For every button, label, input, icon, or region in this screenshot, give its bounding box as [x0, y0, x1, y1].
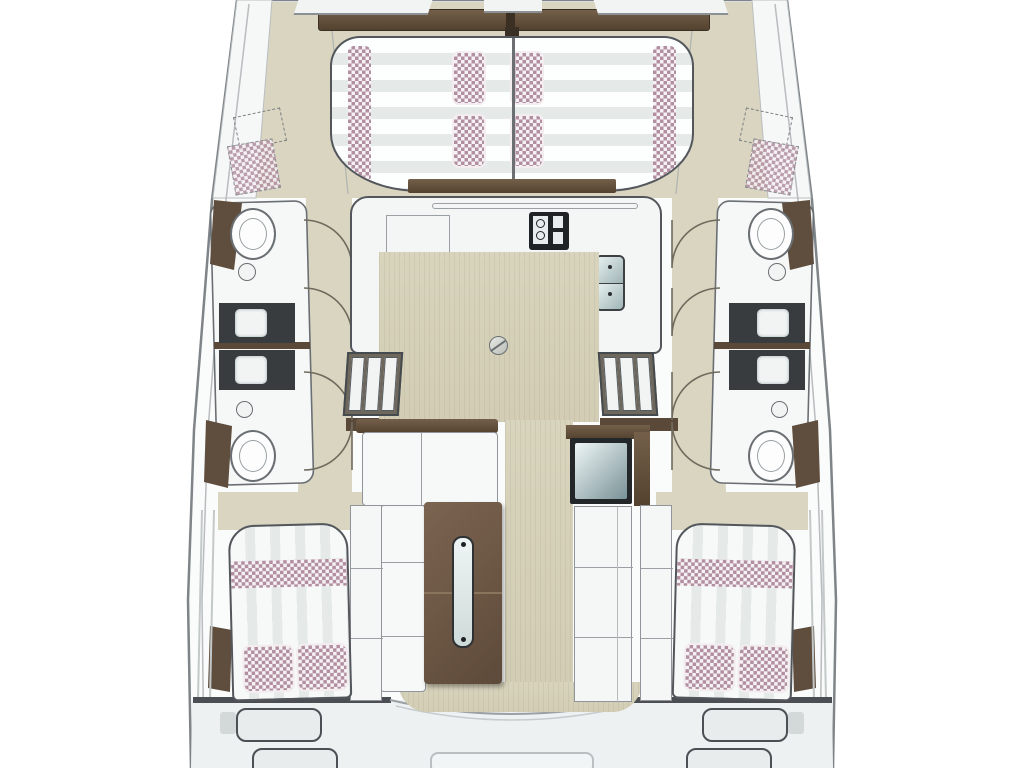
- basin-starboard-fwd: [768, 263, 786, 281]
- appliance-well: [386, 215, 450, 255]
- bow-fitting-center: [484, 0, 542, 13]
- bow-hatch-starboard-cushion: [745, 138, 799, 195]
- lounge-base-trim: [408, 179, 616, 193]
- lounge-pillow: [510, 51, 544, 105]
- berth-starboard: [672, 522, 797, 701]
- fridge-frame-side: [634, 432, 650, 506]
- transom-locker-starboard: [788, 712, 804, 734]
- berth-blanket-band: [231, 558, 352, 588]
- step: [381, 357, 398, 411]
- berth-pillow: [737, 644, 790, 693]
- step: [619, 357, 636, 411]
- sun-lounge: [330, 36, 694, 192]
- lounge-center-seam: [512, 38, 515, 192]
- shower-starboard-aft: [729, 350, 805, 390]
- toilet-seat: [757, 218, 785, 250]
- lounge-pillow: [510, 114, 544, 168]
- aft-platform-step: [430, 752, 594, 768]
- floor-hatch: [489, 336, 508, 355]
- swim-step-port-upper: [236, 708, 322, 742]
- basin-port-fwd: [238, 263, 256, 281]
- toilet-seat: [239, 218, 267, 250]
- table-glass-inlay: [452, 536, 474, 648]
- bow-fitting-starboard: [594, 0, 729, 15]
- berth-pillow: [683, 643, 736, 692]
- basin-starboard-aft: [771, 401, 788, 418]
- shower-port-aft: [219, 350, 295, 390]
- stove-burner: [536, 219, 545, 228]
- companionway-steps-starboard: [598, 352, 658, 416]
- sink-basin: [597, 257, 623, 284]
- shower-port-fwd: [219, 303, 295, 343]
- catamaran-floorplan: [0, 0, 1024, 768]
- saloon-corridor-floor: [505, 420, 573, 686]
- sofa-back: [356, 419, 498, 433]
- stove-control: [553, 232, 563, 244]
- stove-burner: [536, 231, 545, 240]
- sink-basin: [597, 284, 623, 310]
- lounge-pillow: [452, 51, 486, 105]
- lounge-bolster-starboard: [653, 46, 676, 182]
- stove-control: [553, 216, 563, 228]
- lounge-bolster-port: [348, 46, 371, 182]
- shower-starboard-fwd: [729, 303, 805, 343]
- bow-fitting-port: [294, 0, 433, 15]
- toilet-seat: [757, 440, 785, 472]
- berth-blanket-band: [677, 558, 797, 588]
- berth-pillow: [296, 642, 349, 691]
- step: [348, 357, 365, 411]
- sofa-seat-top: [362, 432, 498, 506]
- dining-table: [424, 502, 502, 684]
- step: [636, 357, 653, 411]
- lounge-pillow: [452, 114, 486, 168]
- stove: [529, 212, 569, 250]
- toilet-starboard-aft: [748, 430, 794, 482]
- step: [364, 357, 381, 411]
- berth-port: [228, 522, 353, 701]
- bow-hatch-port-cushion: [227, 138, 281, 195]
- swim-step-starboard-upper: [702, 708, 788, 742]
- toilet-port-fwd: [230, 208, 276, 260]
- bench-starboard: [574, 506, 632, 702]
- toilet-seat: [239, 440, 267, 472]
- counter-rail: [432, 203, 638, 209]
- galley-floor: [379, 252, 599, 422]
- sofa-seat-side: [380, 505, 426, 692]
- swim-step-port-lower: [252, 748, 338, 768]
- step: [603, 357, 620, 411]
- basin-port-aft: [236, 401, 253, 418]
- double-sink: [595, 255, 625, 311]
- fridge-chart-seat: [570, 438, 632, 504]
- berth-pillow: [242, 644, 295, 693]
- toilet-starboard-fwd: [748, 208, 794, 260]
- transom-locker-port: [220, 712, 236, 734]
- companionway-steps-port: [343, 352, 403, 416]
- wardrobe-port: [350, 505, 382, 701]
- toilet-port-aft: [230, 430, 276, 482]
- wardrobe-starboard: [640, 505, 672, 701]
- swim-step-starboard-lower: [686, 748, 772, 768]
